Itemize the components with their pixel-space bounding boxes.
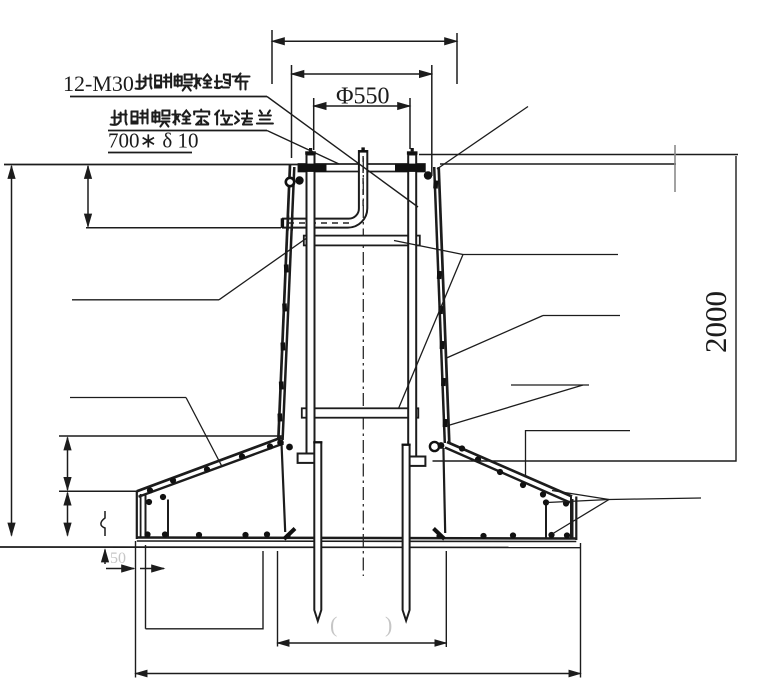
svg-text:700∗ δ 10: 700∗ δ 10 (108, 129, 199, 153)
svg-text:50: 50 (110, 550, 126, 567)
svg-text:(: ( (330, 612, 337, 637)
svg-text:2000: 2000 (698, 291, 733, 353)
svg-text:): ) (385, 612, 392, 637)
svg-text:Φ550: Φ550 (336, 84, 390, 110)
svg-text:12-M30: 12-M30 (63, 71, 134, 96)
